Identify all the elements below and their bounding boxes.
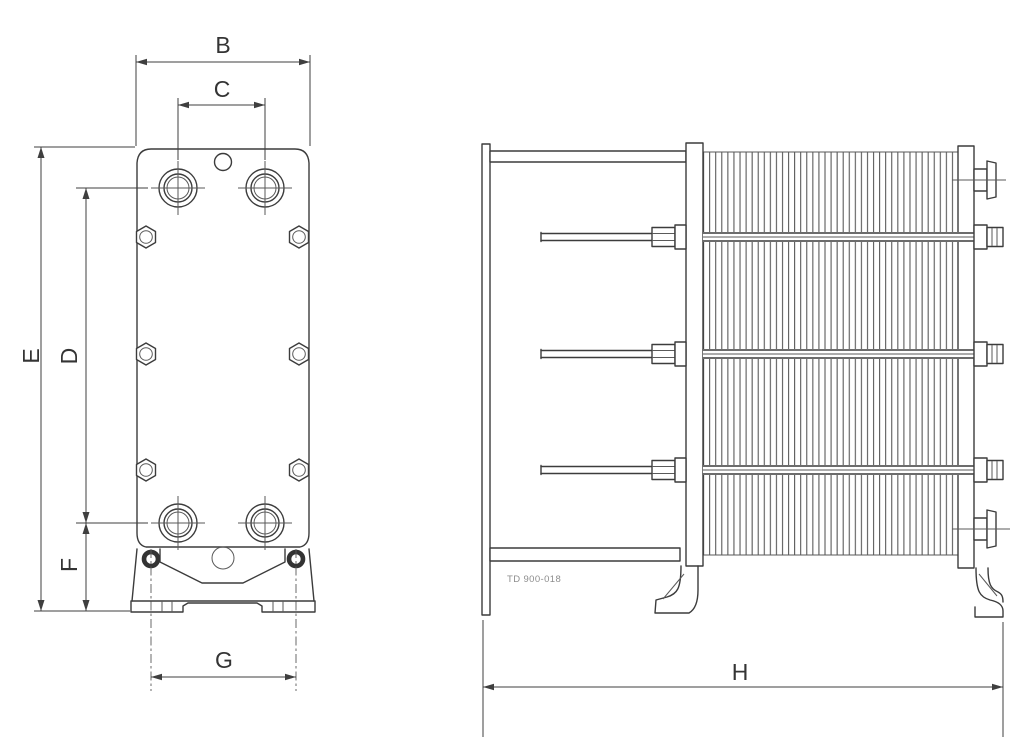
- frame-plate-outline: [137, 149, 309, 547]
- support-column: [482, 144, 490, 615]
- edge-bolt: [137, 459, 156, 481]
- dimension-F: F: [56, 523, 90, 611]
- dimension-D-label: D: [56, 348, 82, 365]
- dimension-F-label: F: [56, 558, 82, 572]
- edge-bolt: [290, 226, 309, 248]
- dimension-H-label: H: [732, 659, 749, 685]
- edge-bolt: [137, 226, 156, 248]
- foot-inner-contour: [160, 549, 285, 583]
- dimension-D: D: [56, 188, 148, 523]
- dimension-E: E: [18, 147, 135, 611]
- edge-bolt: [290, 343, 309, 365]
- edge-bolt: [137, 343, 156, 365]
- dimension-E-label: E: [18, 348, 44, 363]
- heat-exchanger-drawing: TD 900-018 B C E: [0, 0, 1024, 747]
- edge-bolt: [290, 459, 309, 481]
- carrying-bar: [490, 151, 686, 162]
- guide-bar: [490, 548, 680, 561]
- pressure-plate-movable: [686, 143, 703, 566]
- base-foot: [131, 547, 315, 612]
- drawing-code: TD 900-018: [507, 574, 561, 585]
- drawing-sheet: TD 900-018 B C E: [0, 0, 1024, 747]
- dimension-B-label: B: [215, 32, 230, 58]
- foot-fixed-plate: [975, 568, 1003, 617]
- dimension-C: C: [178, 76, 265, 160]
- base-bottom-profile: [131, 601, 315, 612]
- foot-center-hole: [212, 547, 234, 569]
- dimension-G-label: G: [215, 647, 233, 673]
- front-view: [131, 149, 315, 612]
- dimension-H: H: [483, 620, 1003, 737]
- side-view: TD 900-018: [482, 143, 1010, 617]
- dimension-G: G: [151, 549, 296, 691]
- foot-movable-plate: [655, 566, 698, 613]
- dimension-C-label: C: [214, 76, 231, 102]
